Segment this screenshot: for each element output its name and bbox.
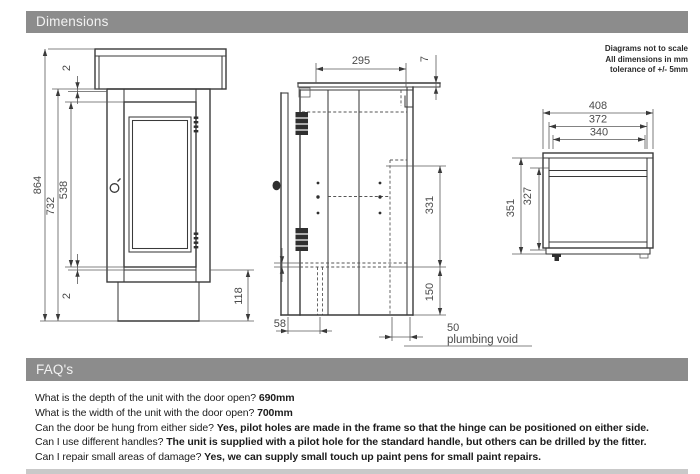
dim-back-opening-label: 331 <box>424 196 436 214</box>
dim-overall-depth-label: 351 <box>505 199 517 217</box>
dimensions-section-title: Dimensions <box>36 14 109 29</box>
dimensions-section-header: Dimensions <box>26 11 688 33</box>
note-line-2: All dimensions in mm <box>605 55 688 66</box>
front-view-drawing: 864 732 538 2 2 118 <box>32 49 254 321</box>
faq-answer: The unit is supplied with a pilot hole f… <box>166 436 646 448</box>
dim-depth-label: 295 <box>352 55 370 67</box>
faq-item: Can I use different handles? The unit is… <box>35 435 685 450</box>
faq-question: What is the width of the unit with the d… <box>35 407 254 419</box>
faq-answer: 690mm <box>259 392 295 404</box>
side-view-dimensions <box>274 55 532 346</box>
door-knob-side <box>273 181 281 191</box>
faqs-section-header: FAQ's <box>26 358 688 381</box>
screw-holes-side <box>316 182 381 215</box>
side-view-drawing: 295 7 331 150 58 50 plumbing void <box>273 55 533 346</box>
dim-plinth-recess-label: 58 <box>274 318 286 330</box>
plan-view-drawing: 408 372 340 351 327 <box>505 100 653 261</box>
note-line-1: Diagrams not to scale <box>605 44 688 55</box>
faq-question: What is the depth of the unit with the d… <box>35 392 256 404</box>
faq-question: Can I repair small areas of damage? <box>35 451 201 463</box>
plan-view-dimensions <box>512 109 653 254</box>
faqs-section-title: FAQ's <box>36 362 73 377</box>
faq-answer: 700mm <box>257 407 293 419</box>
dim-plumbing-void-depth-label: 50 <box>447 322 459 334</box>
dim-internal-width-label: 340 <box>590 127 608 139</box>
drawing-disclaimer-note: Diagrams not to scale All dimensions in … <box>605 44 688 76</box>
faq-item: What is the depth of the unit with the d… <box>35 391 685 406</box>
faq-list: What is the depth of the unit with the d… <box>35 391 685 465</box>
dim-carcass-height-label: 732 <box>45 197 57 215</box>
page-bottom-divider <box>26 469 688 474</box>
faq-question: Can I use different handles? <box>35 436 163 448</box>
faq-answer: Yes, pilot holes are made in the frame s… <box>217 422 649 434</box>
hinges-side <box>296 112 309 251</box>
faq-item: Can I repair small areas of damage? Yes,… <box>35 450 685 465</box>
dim-plinth-height-label: 118 <box>233 287 245 305</box>
dim-lower-void-label: 150 <box>424 283 436 301</box>
dim-door-height-label: 538 <box>58 181 70 199</box>
faq-question: Can the door be hung from either side? <box>35 422 214 434</box>
note-line-3: tolerance of +/- 5mm <box>605 65 688 76</box>
door-knob-front <box>110 179 120 193</box>
front-view-dimensions <box>40 49 254 321</box>
dim-door-gap-bottom-label: 2 <box>61 293 73 299</box>
dim-overall-height-label: 864 <box>32 176 44 194</box>
datasheet-page: 864 732 538 2 2 118 <box>0 0 700 474</box>
faq-answer: Yes, we can supply small touch up paint … <box>204 451 541 463</box>
adjustable-feet <box>552 254 648 261</box>
faq-item: What is the width of the unit with the d… <box>35 406 685 421</box>
dim-overall-width-label: 408 <box>589 100 607 112</box>
dim-internal-depth-label: 327 <box>522 187 534 205</box>
dim-door-gap-top-label: 2 <box>61 65 73 71</box>
dim-mid-width-label: 372 <box>589 114 607 126</box>
dim-worktop-lip-label: 7 <box>419 56 431 62</box>
faq-item: Can the door be hung from either side? Y… <box>35 421 685 436</box>
plumbing-void-label: plumbing void <box>447 334 518 346</box>
